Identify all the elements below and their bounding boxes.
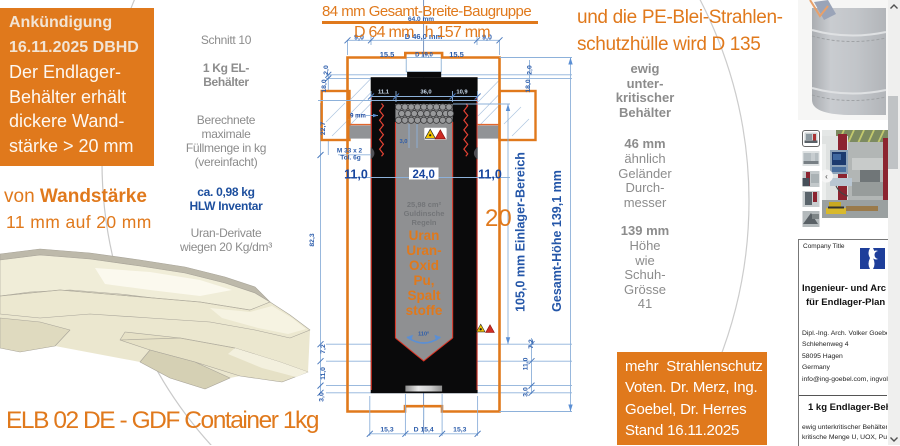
svg-text:11,0: 11,0 [344, 168, 368, 182]
svg-text:Regeln: Regeln [411, 218, 436, 227]
svg-text:M 33 x 2: M 33 x 2 [337, 148, 363, 155]
svg-text:7,2: 7,2 [528, 339, 535, 349]
svg-text:D 15,4: D 15,4 [414, 427, 434, 434]
svg-text:18,0: 18,0 [321, 79, 328, 92]
svg-text:Uran-: Uran- [406, 243, 441, 258]
svg-text:110°: 110° [418, 332, 429, 338]
svg-text:stoffe: stoffe [406, 303, 443, 318]
svg-text:Gesamt-Höhe 139,1 mm: Gesamt-Höhe 139,1 mm [550, 170, 564, 312]
svg-text:Oxid: Oxid [409, 258, 439, 273]
svg-text:3,0: 3,0 [319, 392, 326, 402]
svg-text:Spalt: Spalt [407, 288, 441, 303]
svg-text:105,0 mm Einlager-Bereich: 105,0 mm Einlager-Bereich [514, 152, 528, 312]
svg-text:D 19,0: D 19,0 [415, 53, 433, 59]
svg-text:3,0: 3,0 [523, 387, 530, 397]
svg-text:11,0: 11,0 [478, 168, 502, 182]
svg-text:18,0: 18,0 [525, 79, 532, 92]
svg-text:11,1: 11,1 [378, 90, 390, 96]
svg-text:15,3: 15,3 [380, 427, 393, 434]
svg-text:‹: ‹ [825, 172, 828, 181]
svg-text:82,3: 82,3 [309, 233, 316, 246]
svg-text:2,0: 2,0 [323, 65, 330, 75]
svg-text:Uran: Uran [409, 228, 440, 243]
svg-text:15,3: 15,3 [453, 427, 466, 434]
svg-text:7,2: 7,2 [320, 344, 327, 354]
svg-text:Tol. 6g: Tol. 6g [340, 155, 360, 162]
svg-text:2,0: 2,0 [527, 65, 534, 75]
svg-text:9 mm: 9 mm [350, 114, 366, 120]
svg-text:25,98 cm²: 25,98 cm² [407, 200, 442, 209]
svg-text:Pu,: Pu, [413, 273, 434, 288]
svg-text:36,0: 36,0 [420, 90, 431, 96]
svg-text:22,7: 22,7 [320, 122, 327, 135]
svg-text:11,0: 11,0 [320, 367, 327, 380]
svg-text:15.5: 15.5 [380, 50, 395, 59]
svg-text:24,0: 24,0 [413, 169, 435, 181]
svg-text:11,0: 11,0 [523, 357, 530, 370]
svg-text:10,9: 10,9 [456, 90, 468, 96]
svg-text:15.5: 15.5 [449, 50, 464, 59]
svg-text:Guldinsche: Guldinsche [404, 209, 445, 218]
svg-text:3,0: 3,0 [399, 139, 407, 145]
